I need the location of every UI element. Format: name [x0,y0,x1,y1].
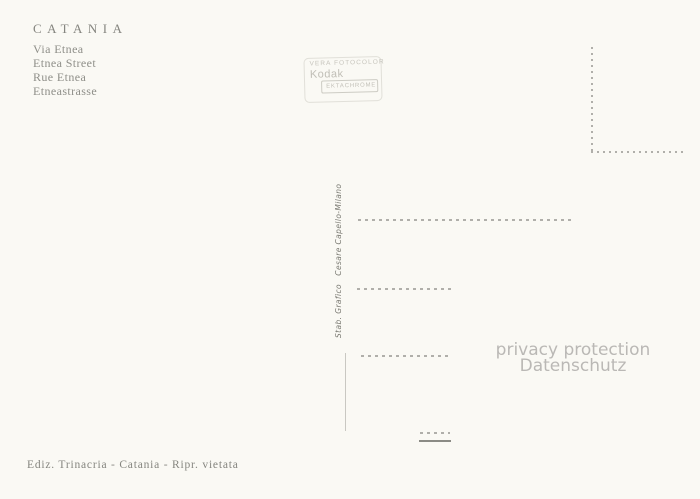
stamp-fotocolor-label: VERA FOTOCOLOR [310,59,375,67]
address-line-1 [358,219,575,221]
stamp-box-dotted-bottom-edge [591,151,686,153]
caption-line-french: Rue Etnea [33,70,128,84]
center-divider-line [345,353,346,431]
bottom-center-solid-mark [419,440,451,442]
kodak-backprint-stamp: VERA FOTOCOLOR Kodak EKTACHROME [303,56,382,103]
caption-line-english: Etnea Street [33,56,128,70]
publisher-line: Ediz. Trinacria - Catania - Ripr. vietat… [27,459,239,471]
caption-block: CATANIA Via Etnea Etnea Street Rue Etnea… [33,21,128,98]
bottom-center-dashed-mark [420,432,450,434]
printer-credit-vertical: Stab. Grafico Cesare Capello-Milano [334,208,347,338]
caption-line-german: Etneastrasse [33,84,128,98]
caption-line-italian: Via Etnea [33,42,128,56]
ektachrome-label: EKTACHROME [326,82,369,89]
postcard-title: CATANIA [33,21,128,37]
stamp-box-dotted-left-edge [591,47,593,151]
address-line-3 [361,355,450,357]
ektachrome-box: EKTACHROME [321,79,378,93]
address-line-2 [357,288,451,290]
privacy-watermark: privacy protection Datenschutz [488,342,658,374]
kodak-logo: Kodak [310,68,381,80]
privacy-watermark-line2: Datenschutz [488,358,658,374]
